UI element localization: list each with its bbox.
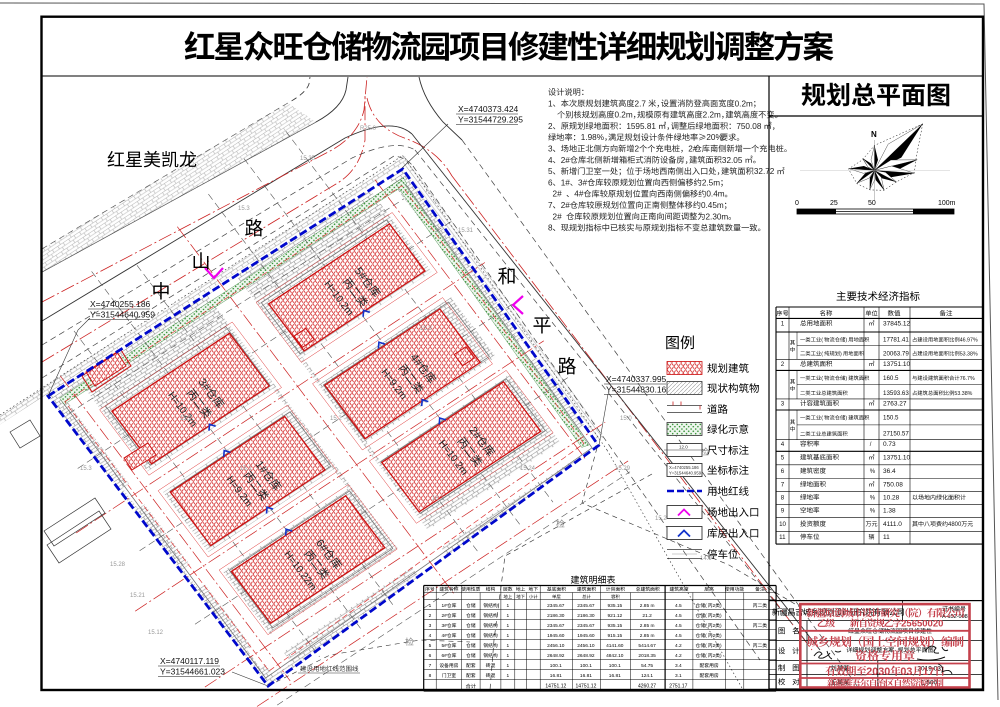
svg-text:4: 4 <box>429 633 432 639</box>
svg-text:): ) <box>845 376 847 382</box>
svg-text:16.81: 16.81 <box>580 673 592 679</box>
svg-text:15.1: 15.1 <box>240 466 252 472</box>
svg-text:15.24: 15.24 <box>520 466 536 472</box>
svg-text:4842.10: 4842.10 <box>606 653 624 659</box>
svg-text:16.81: 16.81 <box>550 673 562 679</box>
svg-text:1: 1 <box>507 633 510 639</box>
svg-text:4.5: 4.5 <box>675 613 682 619</box>
svg-text:4260.27: 4260.27 <box>638 684 656 690</box>
svg-text:2#: 2# <box>548 212 562 221</box>
svg-text:6: 6 <box>781 468 785 475</box>
svg-text:X=4740337.995: X=4740337.995 <box>606 374 667 384</box>
svg-text:32.05: 32.05 <box>722 156 743 165</box>
svg-text:15.21: 15.21 <box>130 593 146 599</box>
svg-text:A-152-008: A-152-008 <box>942 614 968 620</box>
svg-text:1#: 1# <box>442 603 448 609</box>
svg-text:1595.81: 1595.81 <box>626 122 656 131</box>
svg-text:14.9: 14.9 <box>700 556 712 562</box>
svg-text:2345.67: 2345.67 <box>547 623 565 629</box>
svg-text:X=4740255.186: X=4740255.186 <box>669 465 699 470</box>
svg-text:3: 3 <box>781 401 785 408</box>
svg-text:2648.92: 2648.92 <box>547 653 565 659</box>
svg-text:15.29: 15.29 <box>615 466 631 472</box>
svg-text:2: 2 <box>548 122 553 131</box>
svg-text:2#: 2# <box>442 613 448 619</box>
svg-text:(: ( <box>821 416 823 422</box>
svg-text:3: 3 <box>429 623 432 629</box>
svg-text:2: 2 <box>713 643 716 649</box>
svg-text:1.98%，: 1.98%， <box>581 133 612 142</box>
svg-text:3#: 3# <box>442 623 448 629</box>
svg-text:15.2: 15.2 <box>655 516 667 522</box>
svg-text:X=4740117.119: X=4740117.119 <box>160 656 219 666</box>
svg-text:Y=31544661.023: Y=31544661.023 <box>160 667 225 677</box>
svg-text:100m: 100m <box>938 200 956 207</box>
svg-text:2: 2 <box>713 623 716 629</box>
svg-text:2456.10: 2456.10 <box>577 643 595 649</box>
svg-text:2: 2 <box>713 653 716 659</box>
svg-text:2#: 2# <box>548 190 562 199</box>
svg-text:15.3: 15.3 <box>80 466 92 472</box>
svg-text:6: 6 <box>429 653 432 659</box>
svg-text:15.2: 15.2 <box>432 496 444 502</box>
svg-text:Y=31544640.959: Y=31544640.959 <box>669 471 702 476</box>
svg-text:%: % <box>870 509 876 515</box>
svg-text:4.2: 4.2 <box>675 653 682 659</box>
svg-text:1945.60: 1945.60 <box>547 633 565 639</box>
svg-text:2.85 m: 2.85 m <box>640 623 655 629</box>
svg-text:Y=31544640.959: Y=31544640.959 <box>90 310 155 320</box>
svg-text:2648.92: 2648.92 <box>577 653 595 659</box>
svg-text:100.1: 100.1 <box>580 663 592 669</box>
svg-text:10: 10 <box>779 521 786 528</box>
svg-text:50: 50 <box>868 200 876 207</box>
svg-text:15.12: 15.12 <box>148 630 164 636</box>
svg-text:3.4: 3.4 <box>675 663 682 669</box>
svg-text:2186.30: 2186.30 <box>577 613 595 619</box>
svg-text:3#: 3# <box>578 178 588 187</box>
svg-text:2#: 2# <box>561 156 571 165</box>
svg-text:15.2: 15.2 <box>180 416 192 422</box>
svg-text:2345.67: 2345.67 <box>547 603 565 609</box>
svg-text:15.2: 15.2 <box>330 416 342 422</box>
svg-text:1: 1 <box>429 603 432 609</box>
svg-text:3: 3 <box>548 145 553 154</box>
svg-text:): ) <box>845 338 847 344</box>
svg-text:2: 2 <box>635 145 640 154</box>
svg-text:1#: 1# <box>561 178 571 187</box>
svg-text:R25.0: R25.0 <box>360 126 377 132</box>
svg-text:5#: 5# <box>442 643 448 649</box>
svg-text:1: 1 <box>507 653 510 659</box>
svg-text:1: 1 <box>507 643 510 649</box>
svg-text:25650020: 25650020 <box>901 619 943 630</box>
svg-text:(: ( <box>821 376 823 382</box>
svg-text:4.5: 4.5 <box>675 623 682 629</box>
svg-text:5414.67: 5414.67 <box>638 643 656 649</box>
svg-text:2: 2 <box>781 361 785 368</box>
svg-text:4.2: 4.2 <box>675 643 682 649</box>
svg-text:2: 2 <box>713 613 716 619</box>
svg-text:): ) <box>840 351 842 357</box>
svg-text:2018.35: 2018.35 <box>638 653 656 659</box>
svg-text:9: 9 <box>781 508 785 515</box>
svg-text:13593.63: 13593.63 <box>883 390 909 397</box>
svg-text:150.5: 150.5 <box>883 415 899 422</box>
svg-text:1945.60: 1945.60 <box>577 633 595 639</box>
svg-text:2.85 m: 2.85 m <box>640 633 655 639</box>
svg-text:5: 5 <box>548 167 553 176</box>
svg-text:Y=31544729.295: Y=31544729.295 <box>458 115 523 125</box>
svg-text:6: 6 <box>548 178 553 187</box>
svg-text:15.28: 15.28 <box>110 562 126 568</box>
svg-text:6#: 6# <box>442 653 448 659</box>
svg-text:2: 2 <box>429 613 432 619</box>
svg-text:2.85 m: 2.85 m <box>640 603 655 609</box>
svg-text:2751.17: 2751.17 <box>669 684 687 690</box>
svg-text:32.72: 32.72 <box>754 167 775 176</box>
svg-text:15.31: 15.31 <box>458 228 474 234</box>
svg-text:，2#: ，2# <box>680 145 698 154</box>
svg-text:935.15: 935.15 <box>608 623 623 629</box>
svg-text:8: 8 <box>781 495 785 502</box>
svg-text:124.1: 124.1 <box>641 673 653 679</box>
svg-text:20063.79: 20063.79 <box>883 350 909 357</box>
svg-text:4111.0: 4111.0 <box>883 521 902 528</box>
svg-text:2345.67: 2345.67 <box>577 623 595 629</box>
svg-text:%: % <box>870 496 876 502</box>
svg-text:13751.10: 13751.10 <box>883 361 910 368</box>
svg-text:%: % <box>870 469 876 475</box>
svg-text:36.4: 36.4 <box>883 468 896 475</box>
svg-text:25: 25 <box>830 200 838 207</box>
svg-text:4.5: 4.5 <box>675 633 682 639</box>
svg-text:0: 0 <box>795 200 799 207</box>
svg-text:3.1: 3.1 <box>675 673 682 679</box>
svg-text:1:500: 1:500 <box>921 680 938 687</box>
svg-text:8: 8 <box>548 224 553 233</box>
svg-text:15.35: 15.35 <box>300 156 316 162</box>
svg-text:750.08: 750.08 <box>883 482 903 489</box>
svg-text:4#: 4# <box>442 633 448 639</box>
svg-text:2.7: 2.7 <box>635 99 647 108</box>
svg-text:15.3: 15.3 <box>420 326 432 332</box>
svg-text:2345.67: 2345.67 <box>577 603 595 609</box>
svg-text:4: 4 <box>548 156 553 165</box>
svg-text:12.0: 12.0 <box>679 445 688 450</box>
svg-text:0.2m，: 0.2m， <box>614 111 640 120</box>
svg-text:750.08: 750.08 <box>736 122 761 131</box>
svg-text:53.38%: 53.38% <box>960 351 978 357</box>
svg-text:4.5: 4.5 <box>675 603 682 609</box>
svg-text:100.1: 100.1 <box>550 663 562 669</box>
svg-text:1: 1 <box>507 673 510 679</box>
svg-text:7: 7 <box>429 663 432 669</box>
svg-text:10.28: 10.28 <box>883 495 900 502</box>
svg-text:): ) <box>845 416 847 422</box>
svg-text:15.3: 15.3 <box>238 206 250 212</box>
svg-text:2763.27: 2763.27 <box>883 401 907 408</box>
svg-text:4800: 4800 <box>948 522 962 528</box>
svg-text:(: ( <box>821 351 823 357</box>
svg-text:4#: 4# <box>574 190 584 199</box>
svg-text:11: 11 <box>883 534 890 541</box>
svg-text:11: 11 <box>779 534 786 541</box>
svg-text:935.15: 935.15 <box>608 603 623 609</box>
svg-text:17781.41: 17781.41 <box>883 337 909 344</box>
svg-text:1: 1 <box>507 663 510 669</box>
svg-text:1: 1 <box>507 623 510 629</box>
svg-text:14751.12: 14751.12 <box>545 684 566 690</box>
svg-text:16.81: 16.81 <box>609 673 621 679</box>
svg-text:2030: 2030 <box>866 666 890 678</box>
svg-text:，: ， <box>772 122 780 131</box>
svg-text:13751.10: 13751.10 <box>883 455 910 462</box>
svg-text:2186.30: 2186.30 <box>547 613 565 619</box>
svg-text:0.4m: 0.4m <box>706 190 724 199</box>
svg-text:160.5: 160.5 <box>883 375 899 382</box>
svg-text:7: 7 <box>548 201 553 210</box>
svg-text:2.2m，: 2.2m， <box>703 111 729 120</box>
svg-text:46.97%: 46.97% <box>960 338 978 344</box>
svg-text:21.2: 21.2 <box>642 613 652 619</box>
svg-text:1.38: 1.38 <box>883 508 896 515</box>
svg-text:X=4740255.186: X=4740255.186 <box>90 299 151 309</box>
svg-text:(: ( <box>821 338 823 344</box>
svg-text:1: 1 <box>781 321 785 328</box>
svg-text:2.30m: 2.30m <box>706 212 729 221</box>
svg-text:1: 1 <box>507 603 510 609</box>
svg-text:，: ， <box>666 122 674 131</box>
svg-text:5: 5 <box>781 455 785 462</box>
svg-text:14751.12: 14751.12 <box>576 684 597 690</box>
svg-text:100.1: 100.1 <box>609 663 621 669</box>
svg-text:0.73: 0.73 <box>883 441 896 448</box>
svg-text:2.5m: 2.5m <box>702 178 720 187</box>
svg-text:1: 1 <box>548 99 553 108</box>
svg-text:4141.60: 4141.60 <box>606 643 624 649</box>
svg-text:7: 7 <box>781 482 785 489</box>
svg-text:8: 8 <box>429 673 432 679</box>
svg-text:N: N <box>871 130 877 139</box>
svg-text:2#: 2# <box>561 201 571 210</box>
svg-text:27150.57: 27150.57 <box>883 431 909 438</box>
svg-text:20%: 20% <box>706 133 722 142</box>
svg-text:76.7%: 76.7% <box>960 376 975 382</box>
svg-text:17: 17 <box>923 666 935 678</box>
svg-text:2456.10: 2456.10 <box>547 643 565 649</box>
svg-text:54.75: 54.75 <box>641 663 653 669</box>
svg-text:4: 4 <box>781 441 785 448</box>
svg-text:Y=31544830.163: Y=31544830.163 <box>606 385 671 395</box>
svg-text:1: 1 <box>507 613 510 619</box>
svg-text:915.15: 915.15 <box>608 633 623 639</box>
svg-text:37845.12: 37845.12 <box>883 321 910 328</box>
svg-text:0.2m: 0.2m <box>735 99 753 108</box>
svg-text:921.12: 921.12 <box>608 613 623 619</box>
svg-text:15.0: 15.0 <box>620 416 632 422</box>
svg-text:03: 03 <box>900 666 912 678</box>
svg-text:53.38%: 53.38% <box>954 391 972 397</box>
svg-text:5: 5 <box>429 643 432 649</box>
svg-text:2: 2 <box>713 603 716 609</box>
svg-text:0.45m: 0.45m <box>701 201 724 210</box>
svg-text:X=4740373.424: X=4740373.424 <box>458 104 519 114</box>
svg-text:2: 2 <box>713 633 716 639</box>
